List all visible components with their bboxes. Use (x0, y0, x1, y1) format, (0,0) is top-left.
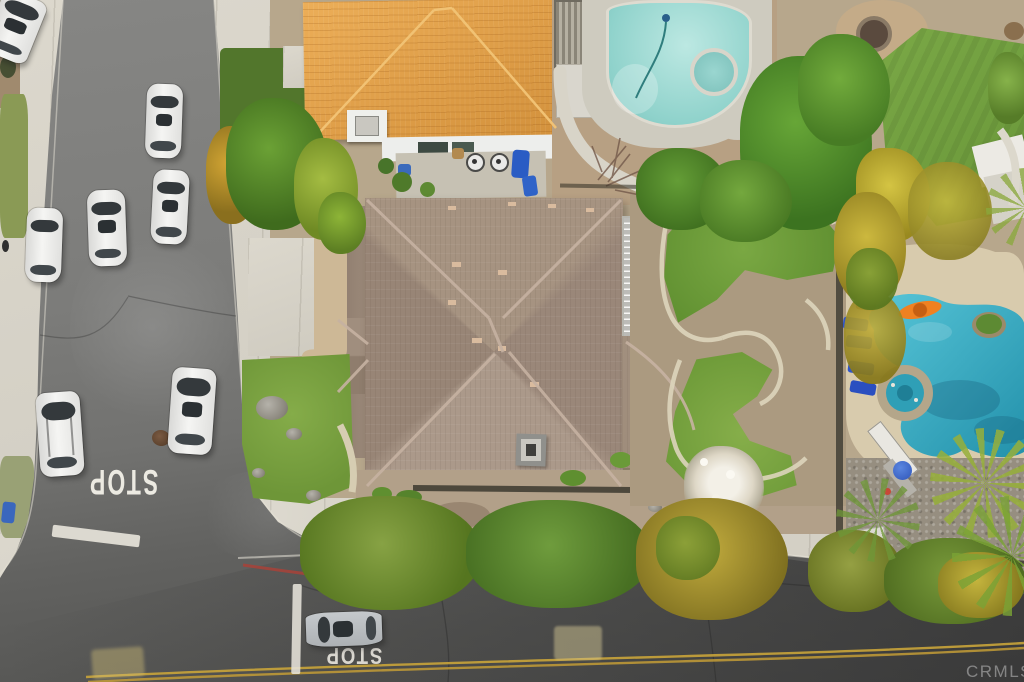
hip-roof-ridges (338, 200, 694, 486)
tree (846, 248, 898, 310)
street-tree (466, 500, 652, 608)
parked-suv (167, 367, 217, 456)
car-sunroof (156, 113, 173, 126)
parked-car (145, 83, 184, 158)
pool-vacuum-head (662, 14, 670, 22)
tree (988, 52, 1024, 124)
parked-car (25, 207, 64, 282)
car-windshield (318, 617, 330, 643)
blue-bin (1, 501, 16, 523)
blossom-speckle (726, 470, 735, 479)
walkway (340, 425, 354, 492)
blossom-speckle (700, 458, 708, 466)
car-sunroof (161, 199, 178, 212)
street-tree (300, 496, 482, 610)
street-tree (656, 516, 720, 580)
crmls-watermark: CRMLS (966, 662, 1024, 682)
car-rear-window (150, 141, 176, 151)
palm-yellow (908, 162, 992, 260)
car-windshield (91, 202, 121, 216)
parked-car (150, 169, 190, 245)
palm-frond (836, 478, 920, 562)
car-rear-window (156, 226, 182, 237)
tree (798, 34, 890, 146)
car-rear-window (366, 616, 377, 639)
parked-suv (35, 391, 85, 478)
car-windshield (150, 95, 179, 109)
pedestrian (2, 240, 9, 252)
tree (318, 192, 366, 254)
aerial-photo: STOP STOP (0, 0, 1024, 682)
car-windshield (30, 219, 59, 233)
parked-car (87, 189, 128, 266)
tree (700, 160, 792, 242)
car-sunroof (98, 220, 116, 234)
driving-car-silver (305, 611, 382, 648)
car-sunroof (181, 402, 202, 418)
roof-rails (46, 416, 75, 456)
tile-roof-ridges (316, 8, 556, 136)
pool-vacuum-hose (636, 22, 666, 98)
car-sunroof (333, 621, 353, 638)
car-rear-window (30, 265, 56, 275)
